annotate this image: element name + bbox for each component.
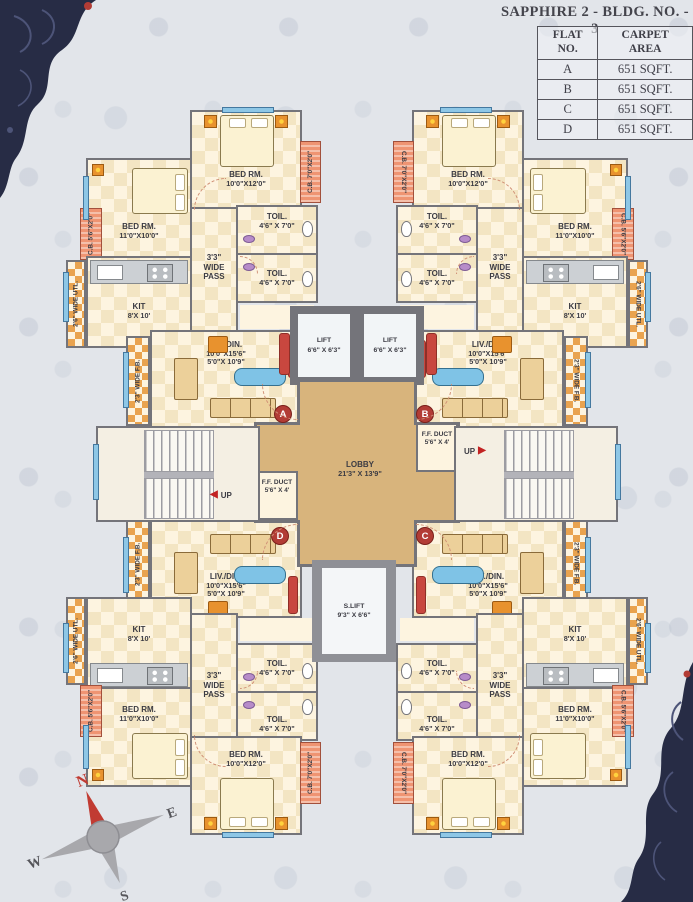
sofa <box>174 552 198 594</box>
table-row: B 651 SQFT. <box>538 79 693 99</box>
corner-ornament-bottom-right <box>613 662 693 902</box>
room-dims: 8'X 10' <box>91 312 187 321</box>
stair-treads <box>144 430 214 472</box>
lobby-label: LOBBY21'3" X 13'9" <box>307 460 413 478</box>
svg-text:N: N <box>74 771 91 791</box>
flat-a-toilet-1: TOIL.4'6" X 7'0" <box>236 205 318 255</box>
flat-no: C <box>538 99 598 119</box>
ff-duct-right: F.F. DUCT5'6" X 4' <box>416 423 458 472</box>
room-dims: 8'X 10' <box>527 635 623 644</box>
flat-b-cupboard-top: C.B. 7'0"X2'0" <box>393 141 414 203</box>
window <box>585 352 591 408</box>
duct-dims: 5'6" X 4' <box>421 439 453 447</box>
cupboard-label: C.B. 7'0"X2'0" <box>302 143 319 201</box>
corridor-patch <box>400 618 474 641</box>
room-dims: 11'0"X10'0" <box>91 232 187 241</box>
flat-no: A <box>538 59 598 79</box>
staircase-left: ◀UP <box>96 426 260 522</box>
table-row: D 651 SQFT. <box>538 119 693 139</box>
window <box>625 176 631 220</box>
washbasin-icon <box>243 701 255 709</box>
window <box>63 272 69 322</box>
up-label: UP▶ <box>464 446 486 456</box>
sofa <box>520 358 544 400</box>
bed <box>530 168 586 214</box>
toilet-icon <box>401 663 412 679</box>
flat-d-kitchen: KIT8'X 10' <box>86 597 192 689</box>
room-dims: 21'3" X 13'9" <box>310 470 410 479</box>
window <box>615 444 621 500</box>
ff-duct-left: F.F. DUCT5'6" X 4' <box>256 471 298 520</box>
sofa <box>442 398 508 418</box>
window <box>93 444 99 500</box>
bed <box>442 778 496 830</box>
window <box>440 832 492 838</box>
passage-label: 3'3" WIDE PASS <box>486 671 514 700</box>
stove-icon <box>543 264 569 282</box>
duct-name: F.F. DUCT <box>421 431 453 439</box>
lift-dims: 9'3" X 6'6" <box>337 612 370 619</box>
chair <box>208 336 228 353</box>
lift-2: LIFT6'6" X 6'3" <box>362 312 418 379</box>
up-text: UP <box>464 447 475 456</box>
washbasin-icon <box>243 235 255 243</box>
cupboard-label: C.B. 7'0"X2'0" <box>395 143 412 201</box>
passage-label: 3'3" WIDE PASS <box>486 253 514 282</box>
window <box>123 537 129 593</box>
window <box>645 272 651 322</box>
flower-bed-label: 2'3" WIDE F.B. <box>567 522 585 606</box>
lift-name: LIFT <box>317 337 331 344</box>
flat-a-cupboard-top: C.B. 7'0"X2'0" <box>300 141 321 203</box>
carpet-area-table: FLAT NO. CARPET AREA A 651 SQFT. B 651 S… <box>537 26 693 140</box>
room-dims: 8'X 10' <box>527 312 623 321</box>
window <box>222 107 274 113</box>
utility-label: 2'6" WIDE UTL. <box>631 263 645 345</box>
side-table <box>275 817 288 830</box>
toilet-icon <box>302 699 313 715</box>
flat-d-toilet-1: TOIL.4'6" X 7'0" <box>236 691 318 741</box>
window <box>585 537 591 593</box>
room-dims: 4'6" X 7'0" <box>241 725 313 734</box>
stove-icon <box>147 264 173 282</box>
lift-dims: 6'6" X 6'3" <box>307 347 340 354</box>
flat-no: B <box>538 79 598 99</box>
carpet-area: 651 SQFT. <box>598 119 693 139</box>
flower-bed-label: 2'3" WIDE F.B. <box>567 339 585 423</box>
kitchen-counter <box>90 663 188 687</box>
utility-label: 2'6" WIDE UTL. <box>69 600 83 682</box>
side-table <box>610 164 622 176</box>
kitchen-counter <box>526 260 624 284</box>
bed <box>220 778 274 830</box>
up-text: UP <box>221 491 232 500</box>
cupboard-label: C.B. 7'0"X2'0" <box>302 744 319 802</box>
window <box>440 107 492 113</box>
flat-c-toilet-1: TOIL.4'6" X 7'0" <box>396 691 478 741</box>
side-table <box>275 115 288 128</box>
table-row: C 651 SQFT. <box>538 99 693 119</box>
side-table <box>497 115 510 128</box>
flat-a-passage: 3'3" WIDE PASS <box>190 207 238 332</box>
staircase-right: UP▶ <box>454 426 618 522</box>
electrical-panel <box>279 333 290 375</box>
room-dims: 4'6" X 7'0" <box>401 725 473 734</box>
tv-unit <box>416 576 426 614</box>
compass-rose: N E S W <box>18 762 188 902</box>
table-header-area: CARPET AREA <box>598 27 693 60</box>
washbasin-icon <box>459 701 471 709</box>
up-arrow-left-icon: ◀ <box>210 490 218 500</box>
side-table <box>204 115 217 128</box>
flat-a-flower-bed: 2'3" WIDE F.B. <box>126 336 150 426</box>
carpet-area: 651 SQFT. <box>598 59 693 79</box>
room-dims: 11'0"X10'0" <box>91 715 187 724</box>
kitchen-counter <box>526 663 624 687</box>
passage-label: 3'3" WIDE PASS <box>200 671 228 700</box>
passage-label: 3'3" WIDE PASS <box>200 253 228 282</box>
toilet-icon <box>401 699 412 715</box>
bed <box>530 733 586 779</box>
lift-dims: 6'6" X 6'3" <box>373 347 406 354</box>
toilet-icon <box>302 271 313 287</box>
window <box>123 352 129 408</box>
sofa <box>442 534 508 554</box>
stair-treads <box>144 478 214 519</box>
cupboard-label: C.B. 7'0"X2'0" <box>395 744 412 802</box>
washbasin-icon <box>459 235 471 243</box>
window <box>63 623 69 673</box>
flat-c-cupboard-bottom: C.B. 7'0"X2'0" <box>393 742 414 804</box>
sofa <box>520 552 544 594</box>
chair <box>492 336 512 353</box>
service-lift: S.LIFT9'3" X 6'6" <box>322 568 386 654</box>
flat-no: D <box>538 119 598 139</box>
flower-bed-label: 2'3" WIDE F.B. <box>129 339 147 423</box>
side-table <box>426 115 439 128</box>
sofa <box>174 358 198 400</box>
side-table <box>204 817 217 830</box>
flat-d-passage: 3'3" WIDE PASS <box>190 613 238 738</box>
carpet-area: 651 SQFT. <box>598 99 693 119</box>
stove-icon <box>543 667 569 685</box>
lift-name: LIFT <box>383 337 397 344</box>
toilet-icon <box>401 271 412 287</box>
flower-bed-label: 2'3" WIDE F.B. <box>129 522 147 606</box>
bed <box>132 168 188 214</box>
toilet-icon <box>302 663 313 679</box>
bed <box>442 115 496 167</box>
toilet-icon <box>302 221 313 237</box>
tv-unit <box>288 576 298 614</box>
duct-dims: 5'6" X 4' <box>261 487 293 495</box>
side-table <box>426 817 439 830</box>
flat-d-flower-bed: 2'3" WIDE F.B. <box>126 519 150 609</box>
up-arrow-right-icon: ▶ <box>478 446 486 456</box>
side-table <box>497 817 510 830</box>
flat-d-utility-strip: 2'6" WIDE UTL. <box>66 597 86 685</box>
sink-icon <box>97 265 123 280</box>
center-table <box>234 566 286 584</box>
toilet-icon <box>401 221 412 237</box>
room-dims: 11'0"X10'0" <box>527 232 623 241</box>
stair-treads <box>504 430 574 472</box>
flat-c-passage: 3'3" WIDE PASS <box>476 613 524 738</box>
sink-icon <box>97 668 123 683</box>
floor-plan-page: BED RM.10'0"X12'0" C.B. 7'0"X2'0" 3'3" W… <box>0 0 693 902</box>
room-dims: 11'0"X10'0" <box>527 715 623 724</box>
room-dims: 8'X 10' <box>91 635 187 644</box>
duct-name: F.F. DUCT <box>261 479 293 487</box>
table-header-flat: FLAT NO. <box>538 27 598 60</box>
flat-a-utility-strip: 2'6" WIDE UTL. <box>66 260 86 348</box>
flat-d-cupboard-bottom: C.B. 7'0"X2'0" <box>300 742 321 804</box>
center-table <box>432 566 484 584</box>
stove-icon <box>147 667 173 685</box>
window <box>222 832 274 838</box>
lift-1: LIFT6'6" X 6'3" <box>296 312 352 379</box>
up-label: ◀UP <box>210 490 232 500</box>
carpet-area: 651 SQFT. <box>598 79 693 99</box>
lift-name: S.LIFT <box>344 603 365 610</box>
stair-treads <box>504 478 574 519</box>
svg-text:S: S <box>118 888 131 902</box>
sink-icon <box>593 265 619 280</box>
utility-label: 2'6" WIDE UTL. <box>69 263 83 345</box>
flat-b-passage: 3'3" WIDE PASS <box>476 207 524 332</box>
electrical-panel <box>426 333 437 375</box>
table-row: A 651 SQFT. <box>538 59 693 79</box>
corridor-patch <box>240 618 314 641</box>
kitchen-counter <box>90 260 188 284</box>
corner-ornament-top-left <box>0 0 110 200</box>
svg-text:W: W <box>26 854 44 873</box>
bed <box>220 115 274 167</box>
svg-text:E: E <box>165 805 179 822</box>
flat-b-toilet-1: TOIL.4'6" X 7'0" <box>396 205 478 255</box>
